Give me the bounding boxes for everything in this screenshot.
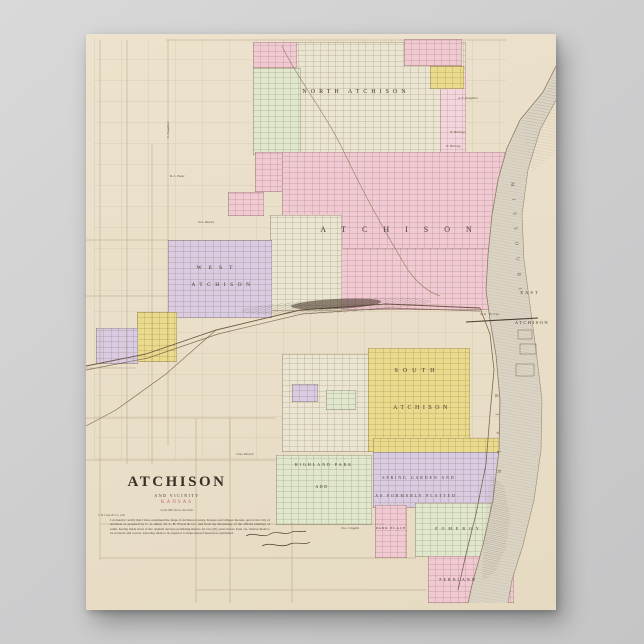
map-subtitle: AND VICINITY <box>154 493 199 498</box>
publisher-note: J. B. Cook & Co., Lith. <box>98 513 126 517</box>
map-poster: NORTH ATCHISON ATCHISON WEST ATCHISON SO… <box>86 34 556 610</box>
certification-text: I do hereby certify that I have examined… <box>110 518 270 536</box>
map-title: ATCHISON <box>128 474 227 491</box>
map-scale-note: Scale 600 feet to the inch. <box>160 508 193 512</box>
title-block: ATCHISON AND VICINITY KANSAS Scale 600 f… <box>86 34 556 610</box>
map-region: KANSAS <box>161 500 193 505</box>
page-background: { "poster": { "map_title": "ATCHISON", "… <box>0 0 644 644</box>
